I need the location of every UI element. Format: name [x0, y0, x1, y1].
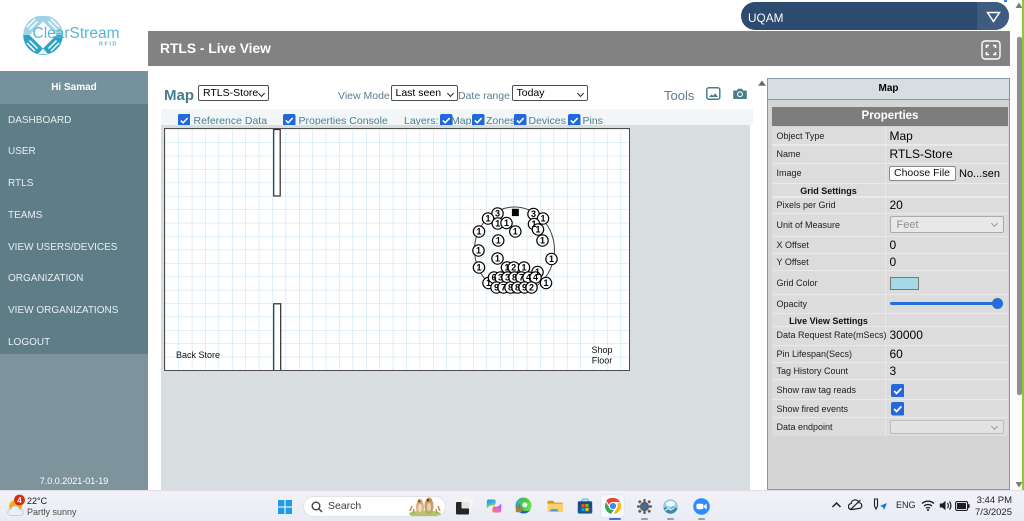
svg-text:3: 3 [531, 209, 536, 219]
svg-text:1: 1 [513, 227, 518, 237]
svg-text:2: 2 [529, 283, 534, 293]
svg-text:1: 1 [476, 246, 481, 256]
svg-text:1: 1 [495, 219, 500, 229]
svg-text:1: 1 [476, 263, 481, 273]
svg-text:4: 4 [533, 273, 538, 283]
svg-text:1: 1 [504, 263, 509, 273]
svg-text:7: 7 [519, 273, 524, 283]
svg-text:1: 1 [504, 218, 509, 228]
svg-text:9: 9 [522, 283, 527, 293]
svg-text:Floor: Floor [592, 356, 613, 366]
svg-text:1: 1 [476, 227, 481, 237]
svg-text:1: 1 [540, 236, 545, 246]
svg-text:3: 3 [495, 209, 500, 219]
svg-text:1: 1 [496, 236, 501, 246]
svg-text:1: 1 [495, 254, 500, 264]
svg-text:8: 8 [508, 283, 513, 293]
svg-text:4: 4 [526, 273, 531, 283]
svg-text:RFID: RFID [99, 42, 118, 48]
svg-text:8: 8 [512, 273, 517, 283]
svg-text:6: 6 [491, 273, 496, 283]
svg-text:9: 9 [494, 283, 499, 293]
svg-text:1: 1 [486, 278, 491, 288]
svg-text:Shop: Shop [591, 345, 612, 355]
svg-text:1: 1 [535, 225, 540, 235]
svg-text:1: 1 [521, 263, 526, 273]
svg-text:1: 1 [540, 214, 545, 224]
svg-text:1: 1 [549, 254, 554, 264]
svg-text:1: 1 [485, 214, 490, 224]
svg-text:ClearStream: ClearStream [33, 25, 120, 42]
svg-text:8: 8 [515, 283, 520, 293]
svg-text:2: 2 [511, 263, 516, 273]
svg-text:1: 1 [543, 278, 548, 288]
svg-text:4: 4 [17, 496, 22, 505]
svg-text:Back Store: Back Store [176, 350, 220, 360]
svg-text:3: 3 [505, 273, 510, 283]
svg-text:7: 7 [501, 283, 506, 293]
svg-text:3: 3 [498, 273, 503, 283]
